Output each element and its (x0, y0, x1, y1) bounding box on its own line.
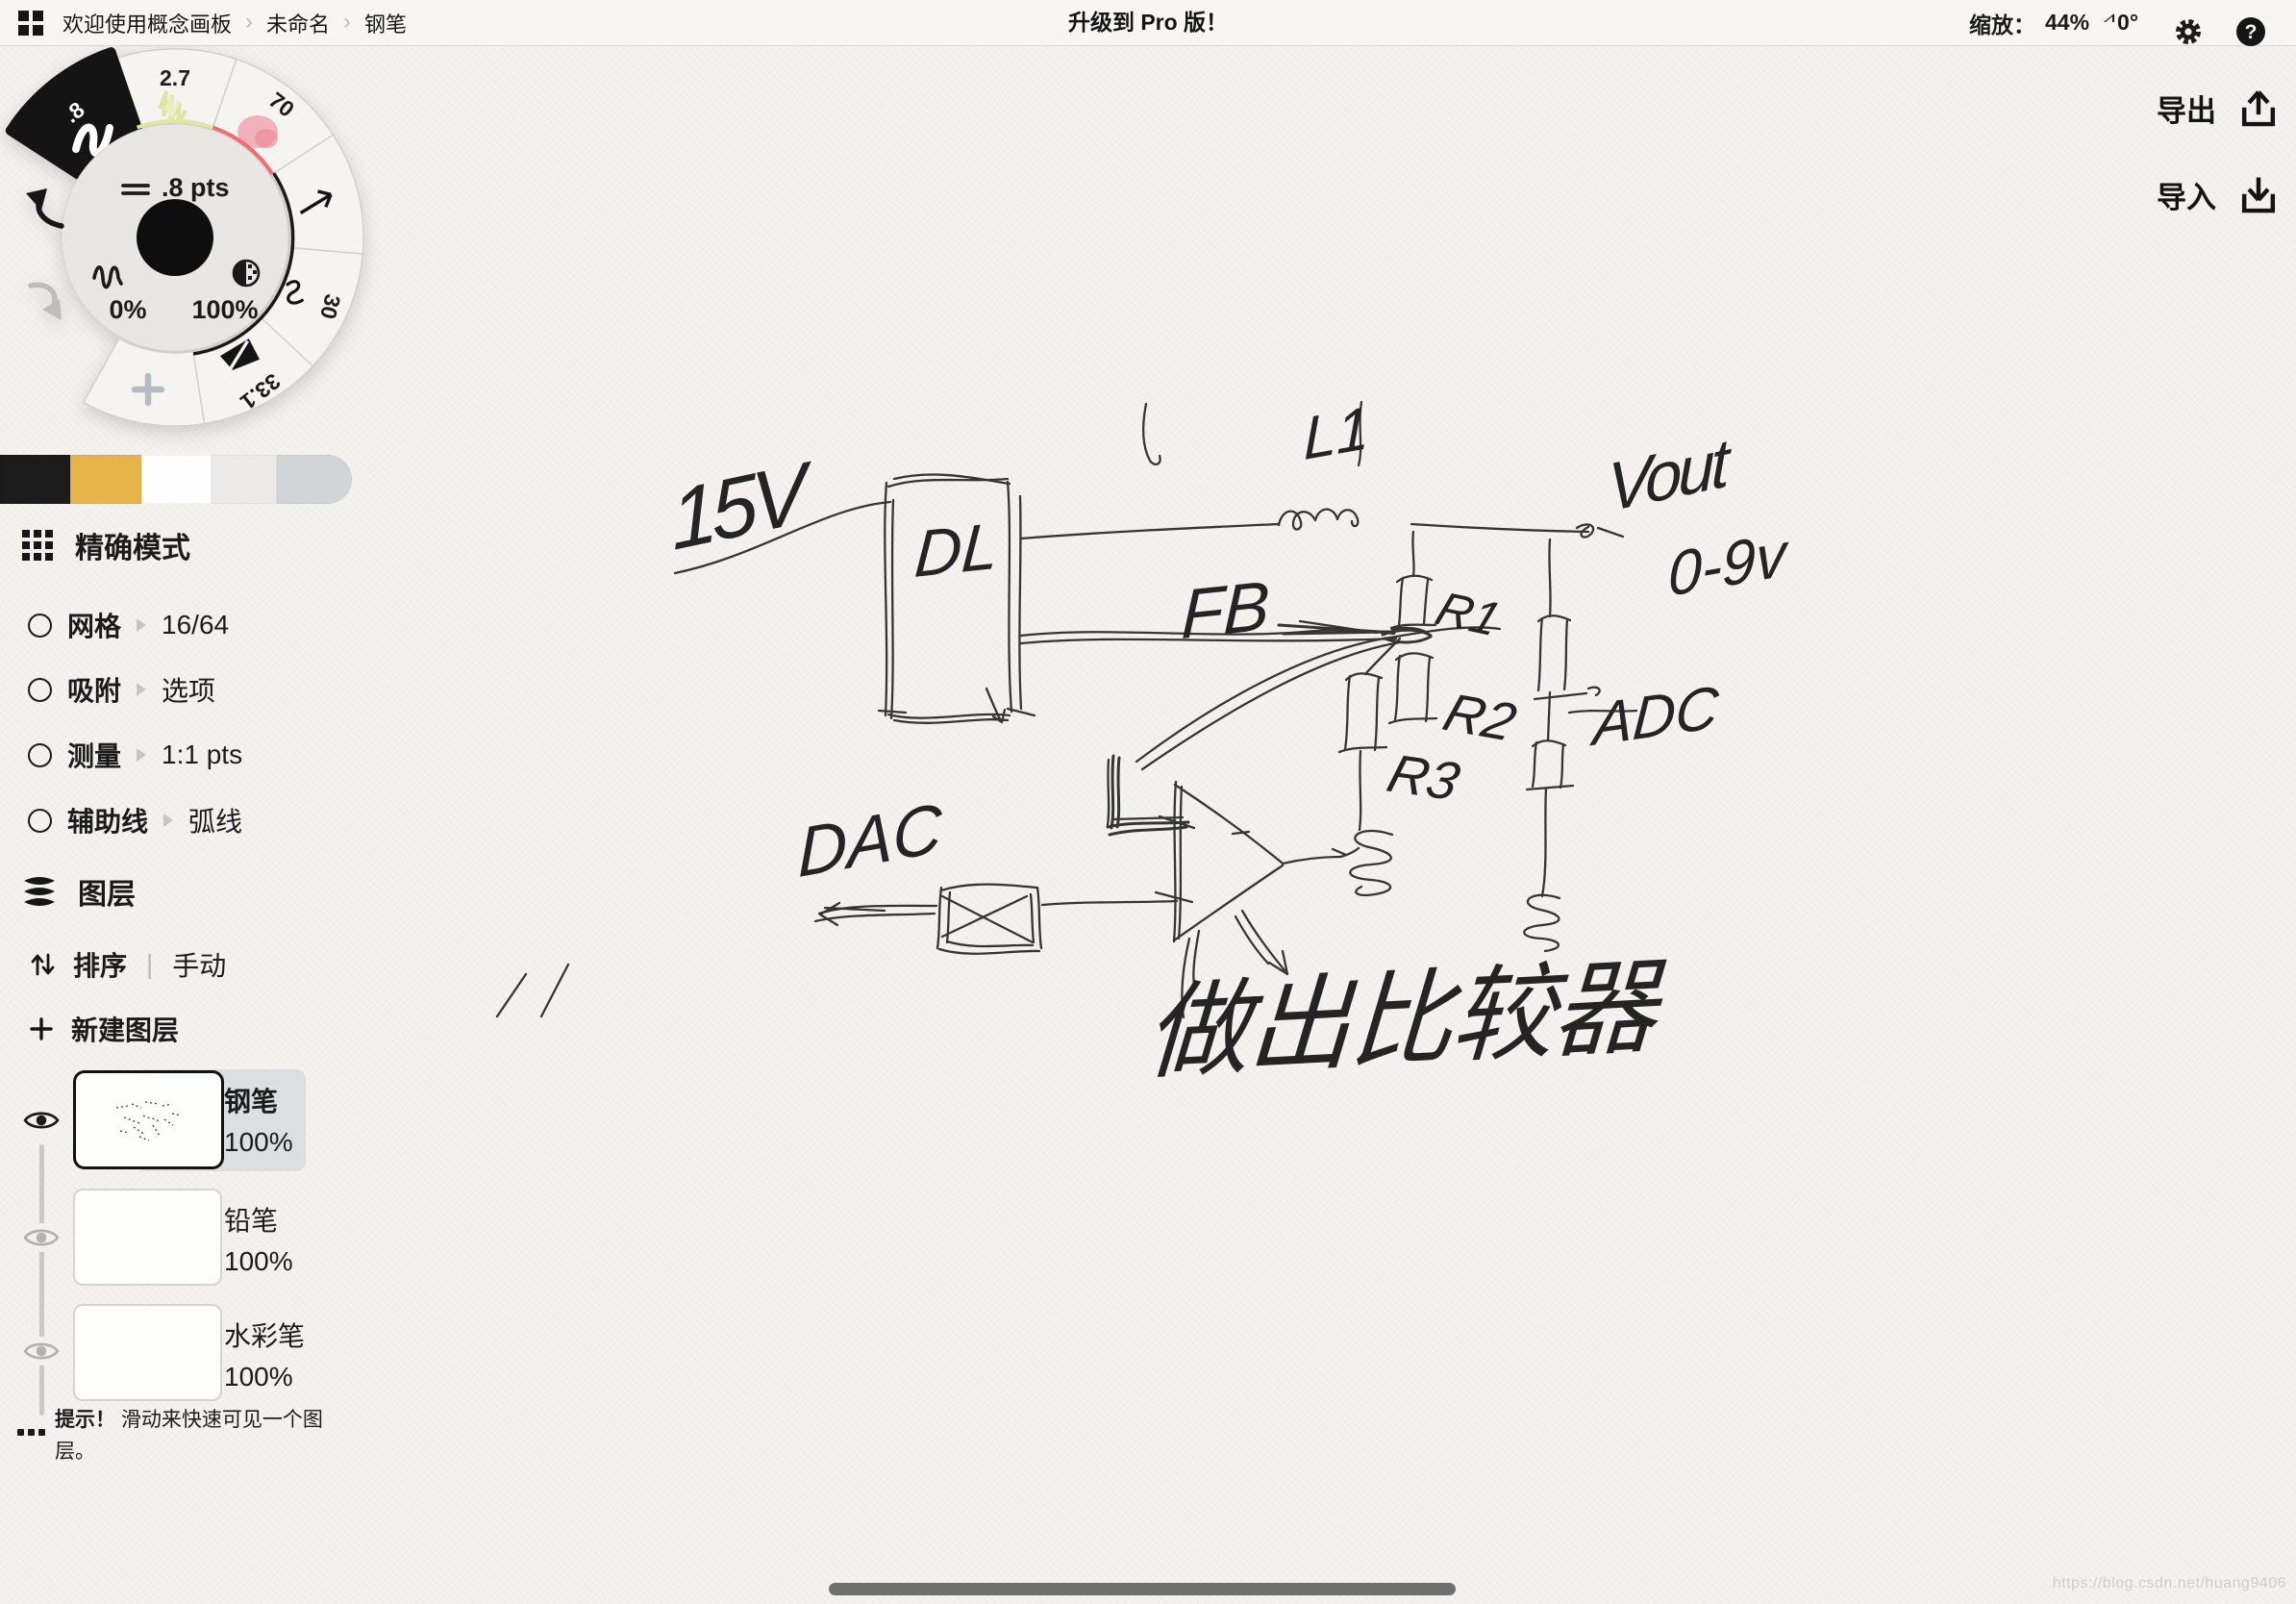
sketch-label-regulator: DL (912, 509, 1001, 591)
top-toolbar: 欢迎使用概念画板 › 未命名 › 钢笔 升级到 Pro 版！ 缩放： 44% 0… (0, 0, 2296, 46)
breadcrumb: 欢迎使用概念画板 › 未命名 › 钢笔 (18, 0, 407, 45)
angle-icon (2103, 17, 2115, 28)
import-label: 导入 (2157, 173, 2216, 216)
color-swatch-bar (0, 455, 352, 504)
svg-text:?: ? (2245, 21, 2258, 43)
circuit-sketch-labels: 15V DL L1 FB R1 R2 R3 Vout 0-9v ADC DAC … (667, 394, 1789, 1091)
opacity-value[interactable]: 100% (191, 295, 258, 324)
smoothing-value[interactable]: 0% (109, 295, 146, 324)
tool-segment-add[interactable] (84, 338, 205, 426)
more-options-icon[interactable] (17, 1429, 45, 1436)
import-button[interactable]: 导入 (2157, 173, 2278, 216)
redo-button[interactable] (31, 285, 62, 320)
sketch-label-r1: R1 (1429, 583, 1508, 646)
sketch-label-supply: 15V (667, 442, 816, 568)
sketch-label-adc: ADC (1587, 673, 1721, 759)
swatch-lightgray[interactable] (212, 455, 277, 504)
zoom-status[interactable]: 缩放： 44% 0° (1969, 0, 2138, 45)
sketch-label-vout-range: 0-9v (1668, 518, 1789, 610)
tip-bold: 提示！ (55, 1409, 115, 1431)
sketch-label-annotation: 做出比较器 (1143, 948, 1668, 1091)
tool-wheel[interactable]: .8 2.7 70 30 33.1 (0, 36, 377, 439)
chevron-right-icon: › (343, 9, 351, 36)
zoom-value: 44% (2045, 10, 2089, 36)
sketch-label-vout: Vout (1608, 423, 1733, 526)
opacity-icon (234, 261, 259, 286)
precision-title: 精确模式 (75, 524, 190, 566)
sketch-label-feedback: FB (1180, 567, 1270, 654)
layers-panel: 图层 (22, 870, 136, 913)
gallery-grid-icon[interactable] (18, 11, 43, 36)
sketch-label-r3: R3 (1382, 743, 1466, 812)
swatch-gray[interactable] (277, 455, 352, 504)
import-icon (2239, 175, 2278, 215)
export-button[interactable]: 导出 (2157, 87, 2278, 130)
swatch-black[interactable] (0, 455, 70, 504)
layers-title: 图层 (78, 870, 136, 913)
zoom-label: 缩放： (1969, 7, 2035, 39)
watermark-url: https://blog.csdn.net/huang9406 (2053, 1575, 2286, 1592)
export-icon (2239, 88, 2278, 129)
angle-value: 0° (2117, 10, 2138, 36)
help-icon[interactable]: ? (2234, 15, 2267, 48)
precision-panel: 精确模式 (22, 524, 190, 566)
undo-button[interactable] (26, 188, 62, 226)
export-label: 导出 (2157, 87, 2216, 130)
chevron-right-icon: › (245, 9, 253, 36)
pencil-size-value: 2.7 (160, 65, 190, 90)
upgrade-pro-button[interactable]: 升级到 Pro 版！ (1068, 0, 1228, 45)
sketch-label-dac: DAC (798, 789, 942, 892)
sketch-label-inductor: L1 (1304, 394, 1369, 474)
breadcrumb-document[interactable]: 未命名 (266, 8, 330, 38)
layer-tip: 提示！ 滑动来快速可见一个图层。 (55, 1404, 343, 1467)
layers-icon (22, 876, 57, 907)
stroke-width-value[interactable]: .8 pts (162, 173, 230, 202)
swatch-orange[interactable] (70, 455, 141, 504)
precision-grid-icon (22, 530, 54, 562)
breadcrumb-layer[interactable]: 钢笔 (364, 8, 407, 38)
breadcrumb-gallery[interactable]: 欢迎使用概念画板 (62, 8, 232, 38)
swatch-white[interactable] (141, 455, 212, 504)
settings-gear-icon[interactable] (2172, 15, 2205, 48)
color-hub[interactable] (137, 199, 213, 276)
redo-arrow-icon (42, 299, 62, 320)
app-window: 15V DL L1 FB R1 R2 R3 Vout 0-9v ADC DAC … (0, 0, 2296, 1604)
sketch-label-r2: R2 (1436, 682, 1523, 752)
home-indicator[interactable] (829, 1583, 1456, 1595)
